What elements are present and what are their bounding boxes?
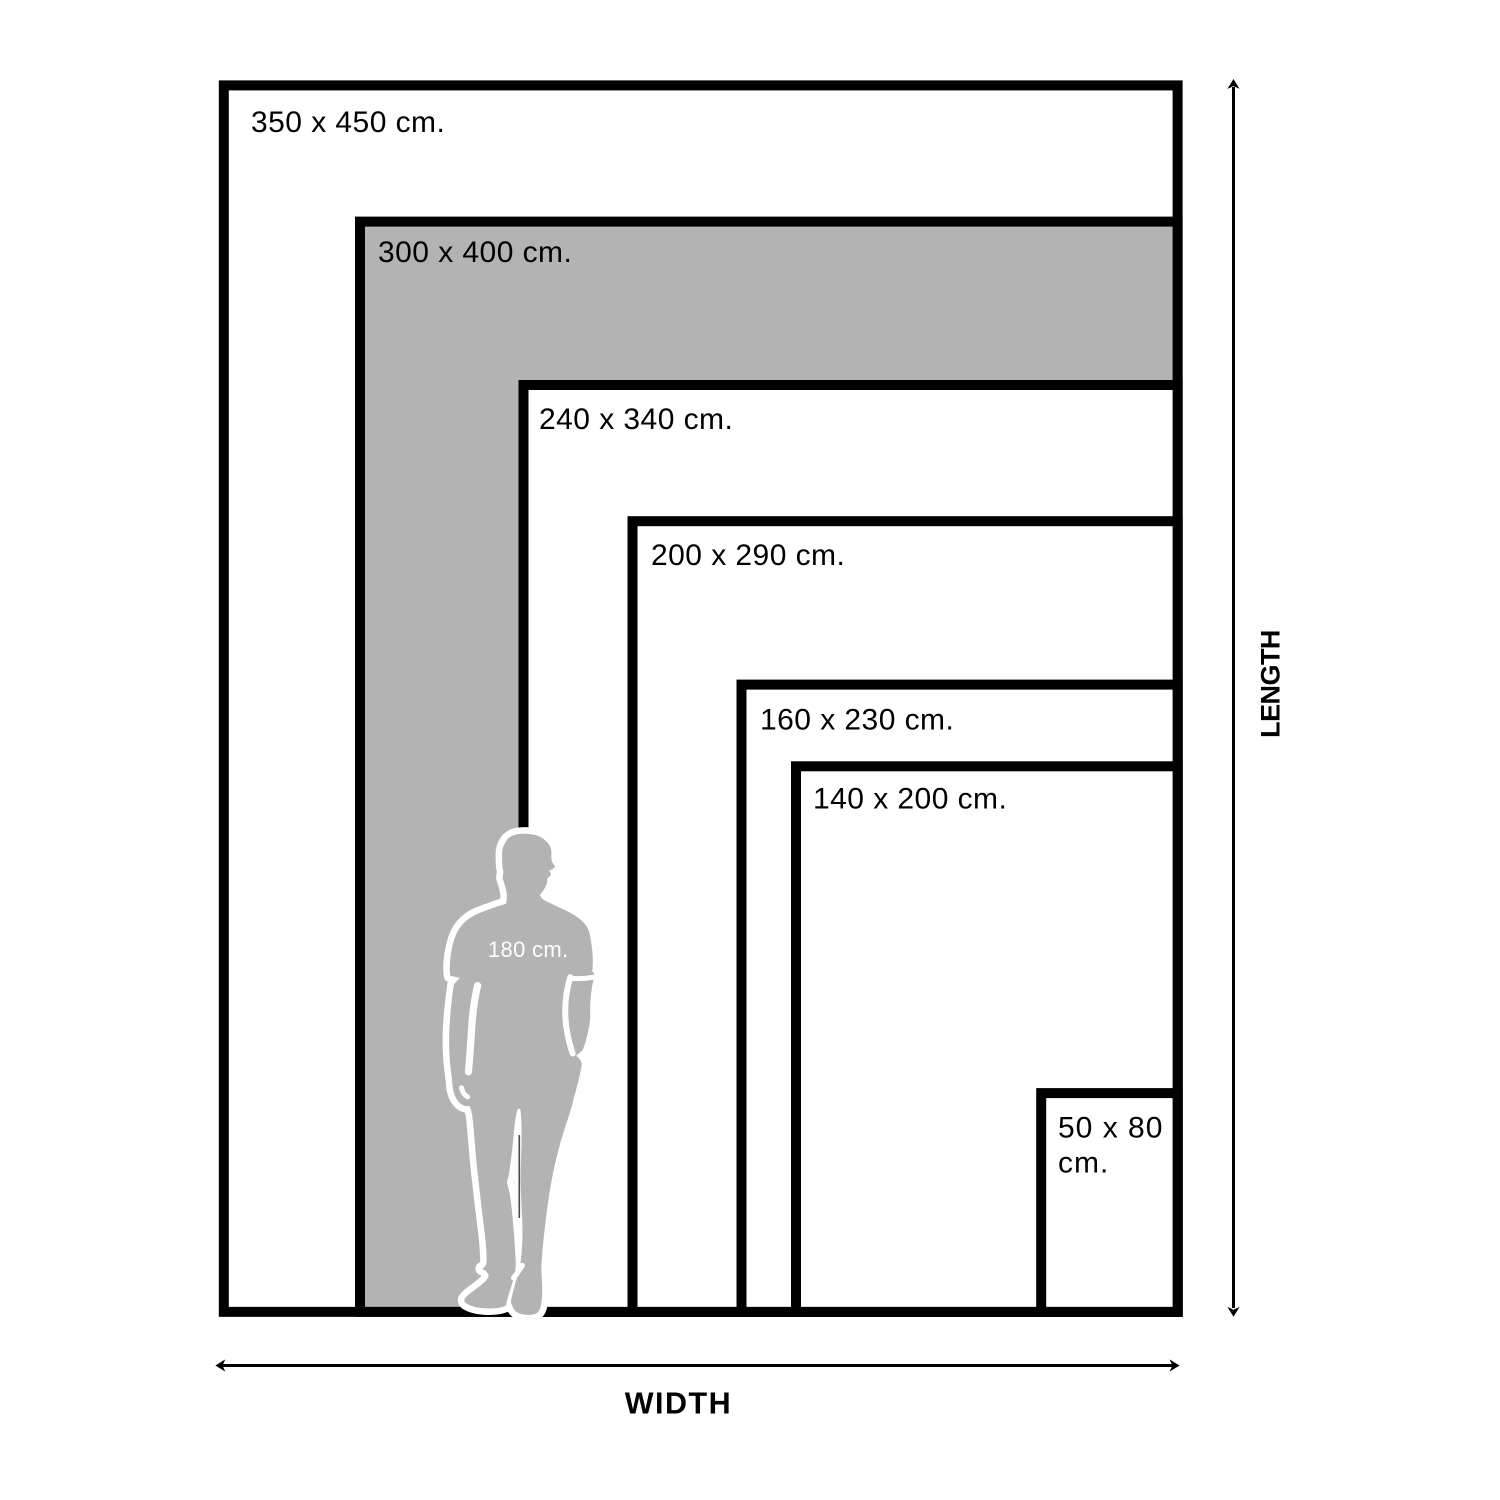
svg-text:180 cm.: 180 cm. [488,937,568,962]
svg-text:240 x 340 cm.: 240 x 340 cm. [539,403,733,436]
svg-text:300 x 400 cm.: 300 x 400 cm. [378,236,572,269]
svg-text:50 x 80: 50 x 80 [1058,1112,1163,1145]
svg-text:cm.: cm. [1058,1147,1109,1180]
svg-text:160 x 230 cm.: 160 x 230 cm. [760,704,954,737]
svg-text:140 x 200 cm.: 140 x 200 cm. [813,783,1007,816]
svg-text:LENGTH: LENGTH [1255,630,1285,738]
svg-text:WIDTH: WIDTH [625,1387,732,1421]
svg-text:350 x 450 cm.: 350 x 450 cm. [251,106,445,139]
svg-text:200 x 290 cm.: 200 x 290 cm. [651,539,845,572]
